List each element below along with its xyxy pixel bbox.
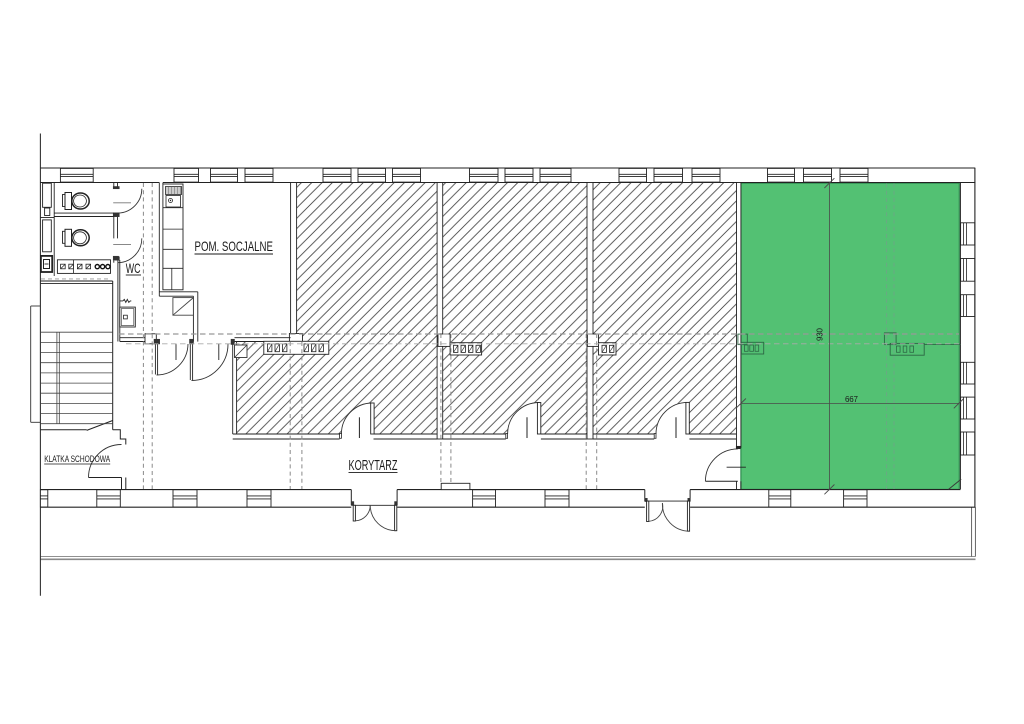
svg-text:667: 667 [845,395,859,404]
svg-text:POM. SOCJALNE: POM. SOCJALNE [195,238,274,254]
svg-text:KLATKA SCHODOWA: KLATKA SCHODOWA [44,454,110,464]
svg-text:KORYTARZ: KORYTARZ [349,458,398,474]
svg-text:930: 930 [816,327,825,341]
svg-text:WC: WC [126,260,141,276]
